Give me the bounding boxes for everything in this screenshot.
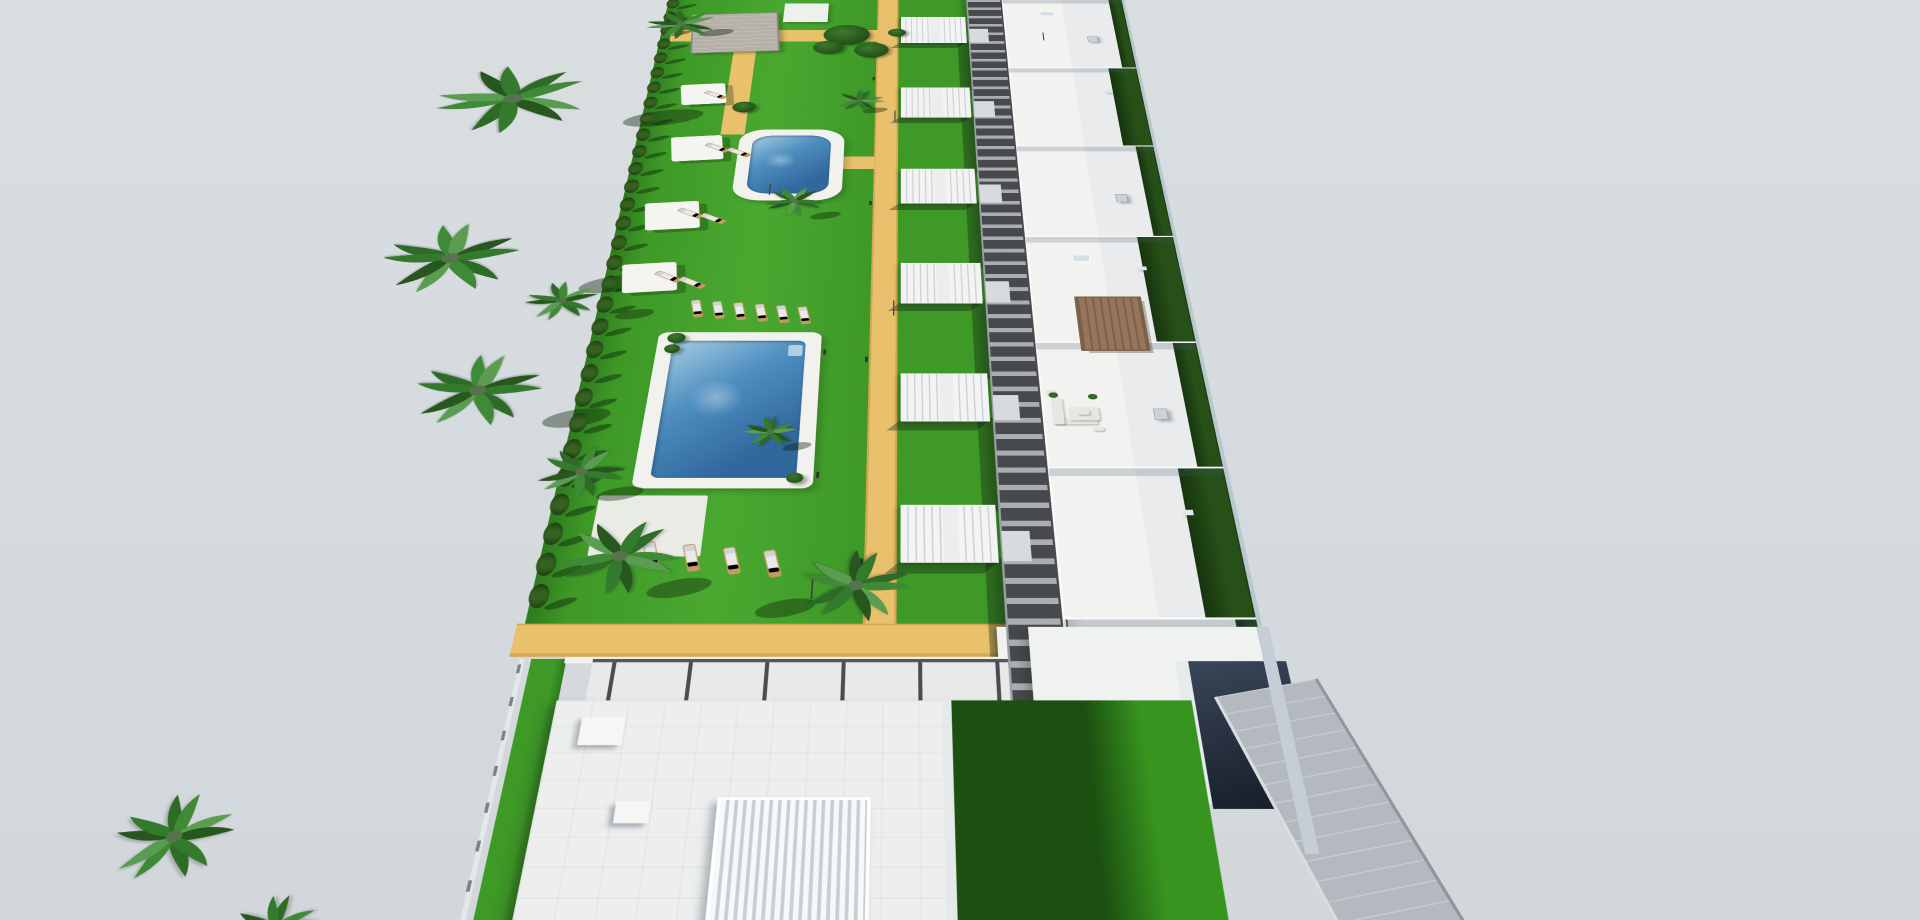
palm-tree <box>382 45 640 157</box>
roof-vent <box>1136 266 1147 270</box>
bollard-light <box>865 357 868 362</box>
roof-vent <box>1104 90 1113 93</box>
unit-divider-wall <box>1025 236 1173 237</box>
walkway-landing <box>969 29 989 43</box>
corridor-gate-post <box>996 627 1007 658</box>
bollard-light <box>823 349 826 354</box>
garden-shrub <box>888 29 906 37</box>
walkway-landing <box>1001 531 1032 561</box>
stair-mid-landing <box>943 505 960 561</box>
bollard-light <box>816 472 819 478</box>
ac-unit <box>1115 194 1128 202</box>
rooftop-box <box>613 801 651 823</box>
cross-path <box>509 624 1007 657</box>
walkway-landing <box>993 395 1021 420</box>
palm-tree <box>367 331 588 456</box>
walkway-landing <box>974 101 996 117</box>
sun-lounger <box>689 299 704 319</box>
louvered-pergola <box>689 797 870 920</box>
palm-tree <box>636 6 725 43</box>
lamp-pole <box>894 110 895 121</box>
garden-shed <box>783 4 829 22</box>
unit-divider-wall-shadow <box>1026 237 1175 243</box>
rooftop-box <box>577 717 625 746</box>
pergola-post <box>918 662 922 701</box>
lower-lawn <box>951 700 1228 920</box>
walkway-landing <box>979 184 1002 202</box>
unit-divider-wall-shadow <box>1048 468 1225 476</box>
skylight <box>1040 12 1054 16</box>
unit-divider-wall-shadow <box>1009 68 1137 72</box>
stair-mid-landing <box>932 88 944 117</box>
amenity-pergola-zone <box>585 659 1011 705</box>
lamp-pole <box>893 300 894 315</box>
unit-divider-wall <box>1016 146 1153 147</box>
unit-divider-wall-shadow <box>1002 0 1122 4</box>
terrace-plant <box>1048 392 1058 397</box>
skylight <box>1072 255 1090 261</box>
stair-mid-landing <box>936 263 950 302</box>
palm-tree <box>97 771 254 908</box>
stair-mid-landing <box>939 373 954 420</box>
ac-unit <box>1087 36 1098 42</box>
garden-shrub <box>854 42 889 57</box>
stair-mid-landing <box>934 169 947 203</box>
ac-unit <box>1153 408 1169 419</box>
main-pool-steps <box>788 345 803 356</box>
palm-tree <box>200 879 344 920</box>
unit-divider-wall <box>1009 67 1137 68</box>
unit-divider-wall <box>1063 617 1256 619</box>
terrace-furniture <box>1093 427 1105 431</box>
roof-vent <box>1181 510 1194 515</box>
stair-mid-landing <box>930 17 941 42</box>
aerial-render-scene <box>0 0 1920 920</box>
unit-divider-wall <box>1048 467 1223 469</box>
bollard-light <box>869 201 871 205</box>
site-plan <box>422 0 1382 920</box>
terrace-furniture <box>1077 410 1090 415</box>
terrace-plant <box>1088 394 1098 399</box>
unit-divider-wall-shadow <box>1017 147 1155 152</box>
townhouse-roof-terrace <box>1003 0 1072 67</box>
garden-path-spur <box>842 157 875 169</box>
wooden-pergola <box>1074 296 1151 350</box>
walkway-landing <box>985 281 1010 302</box>
bollard-light <box>873 77 875 80</box>
